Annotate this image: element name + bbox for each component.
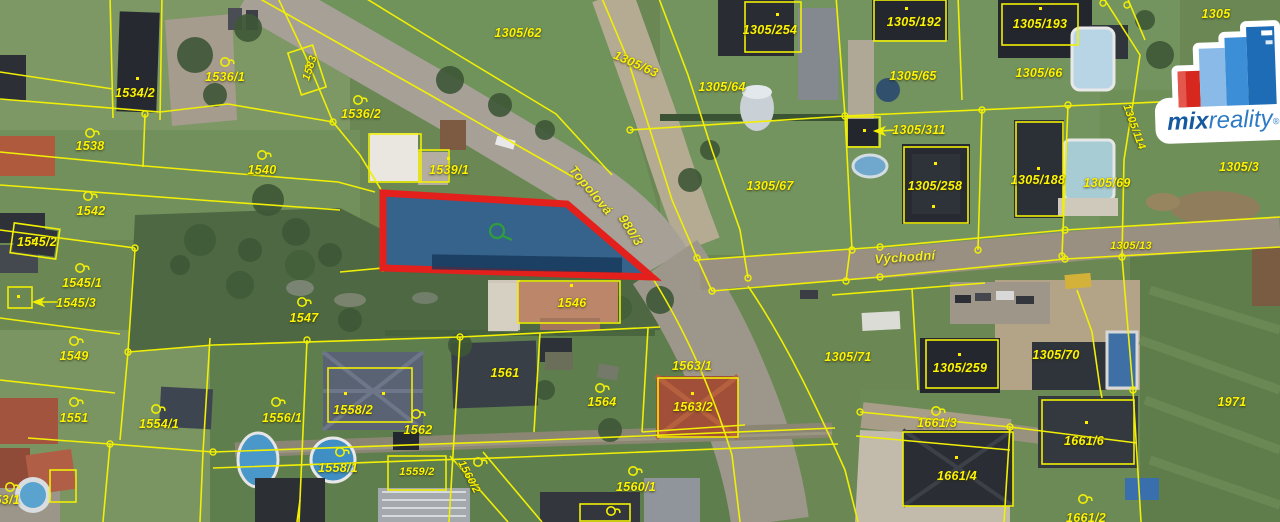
svg-text:mixreality®: mixreality®: [1167, 105, 1280, 136]
logo-registered-mark: ®: [1273, 116, 1280, 126]
logo-brand-bold: mix: [1167, 107, 1211, 135]
aerial-photo-layer: [0, 0, 1280, 522]
cadastral-map[interactable]: mixreality® 1534/21536/11536/21583153815…: [0, 0, 1280, 522]
logo-brand-light: reality: [1208, 105, 1275, 134]
